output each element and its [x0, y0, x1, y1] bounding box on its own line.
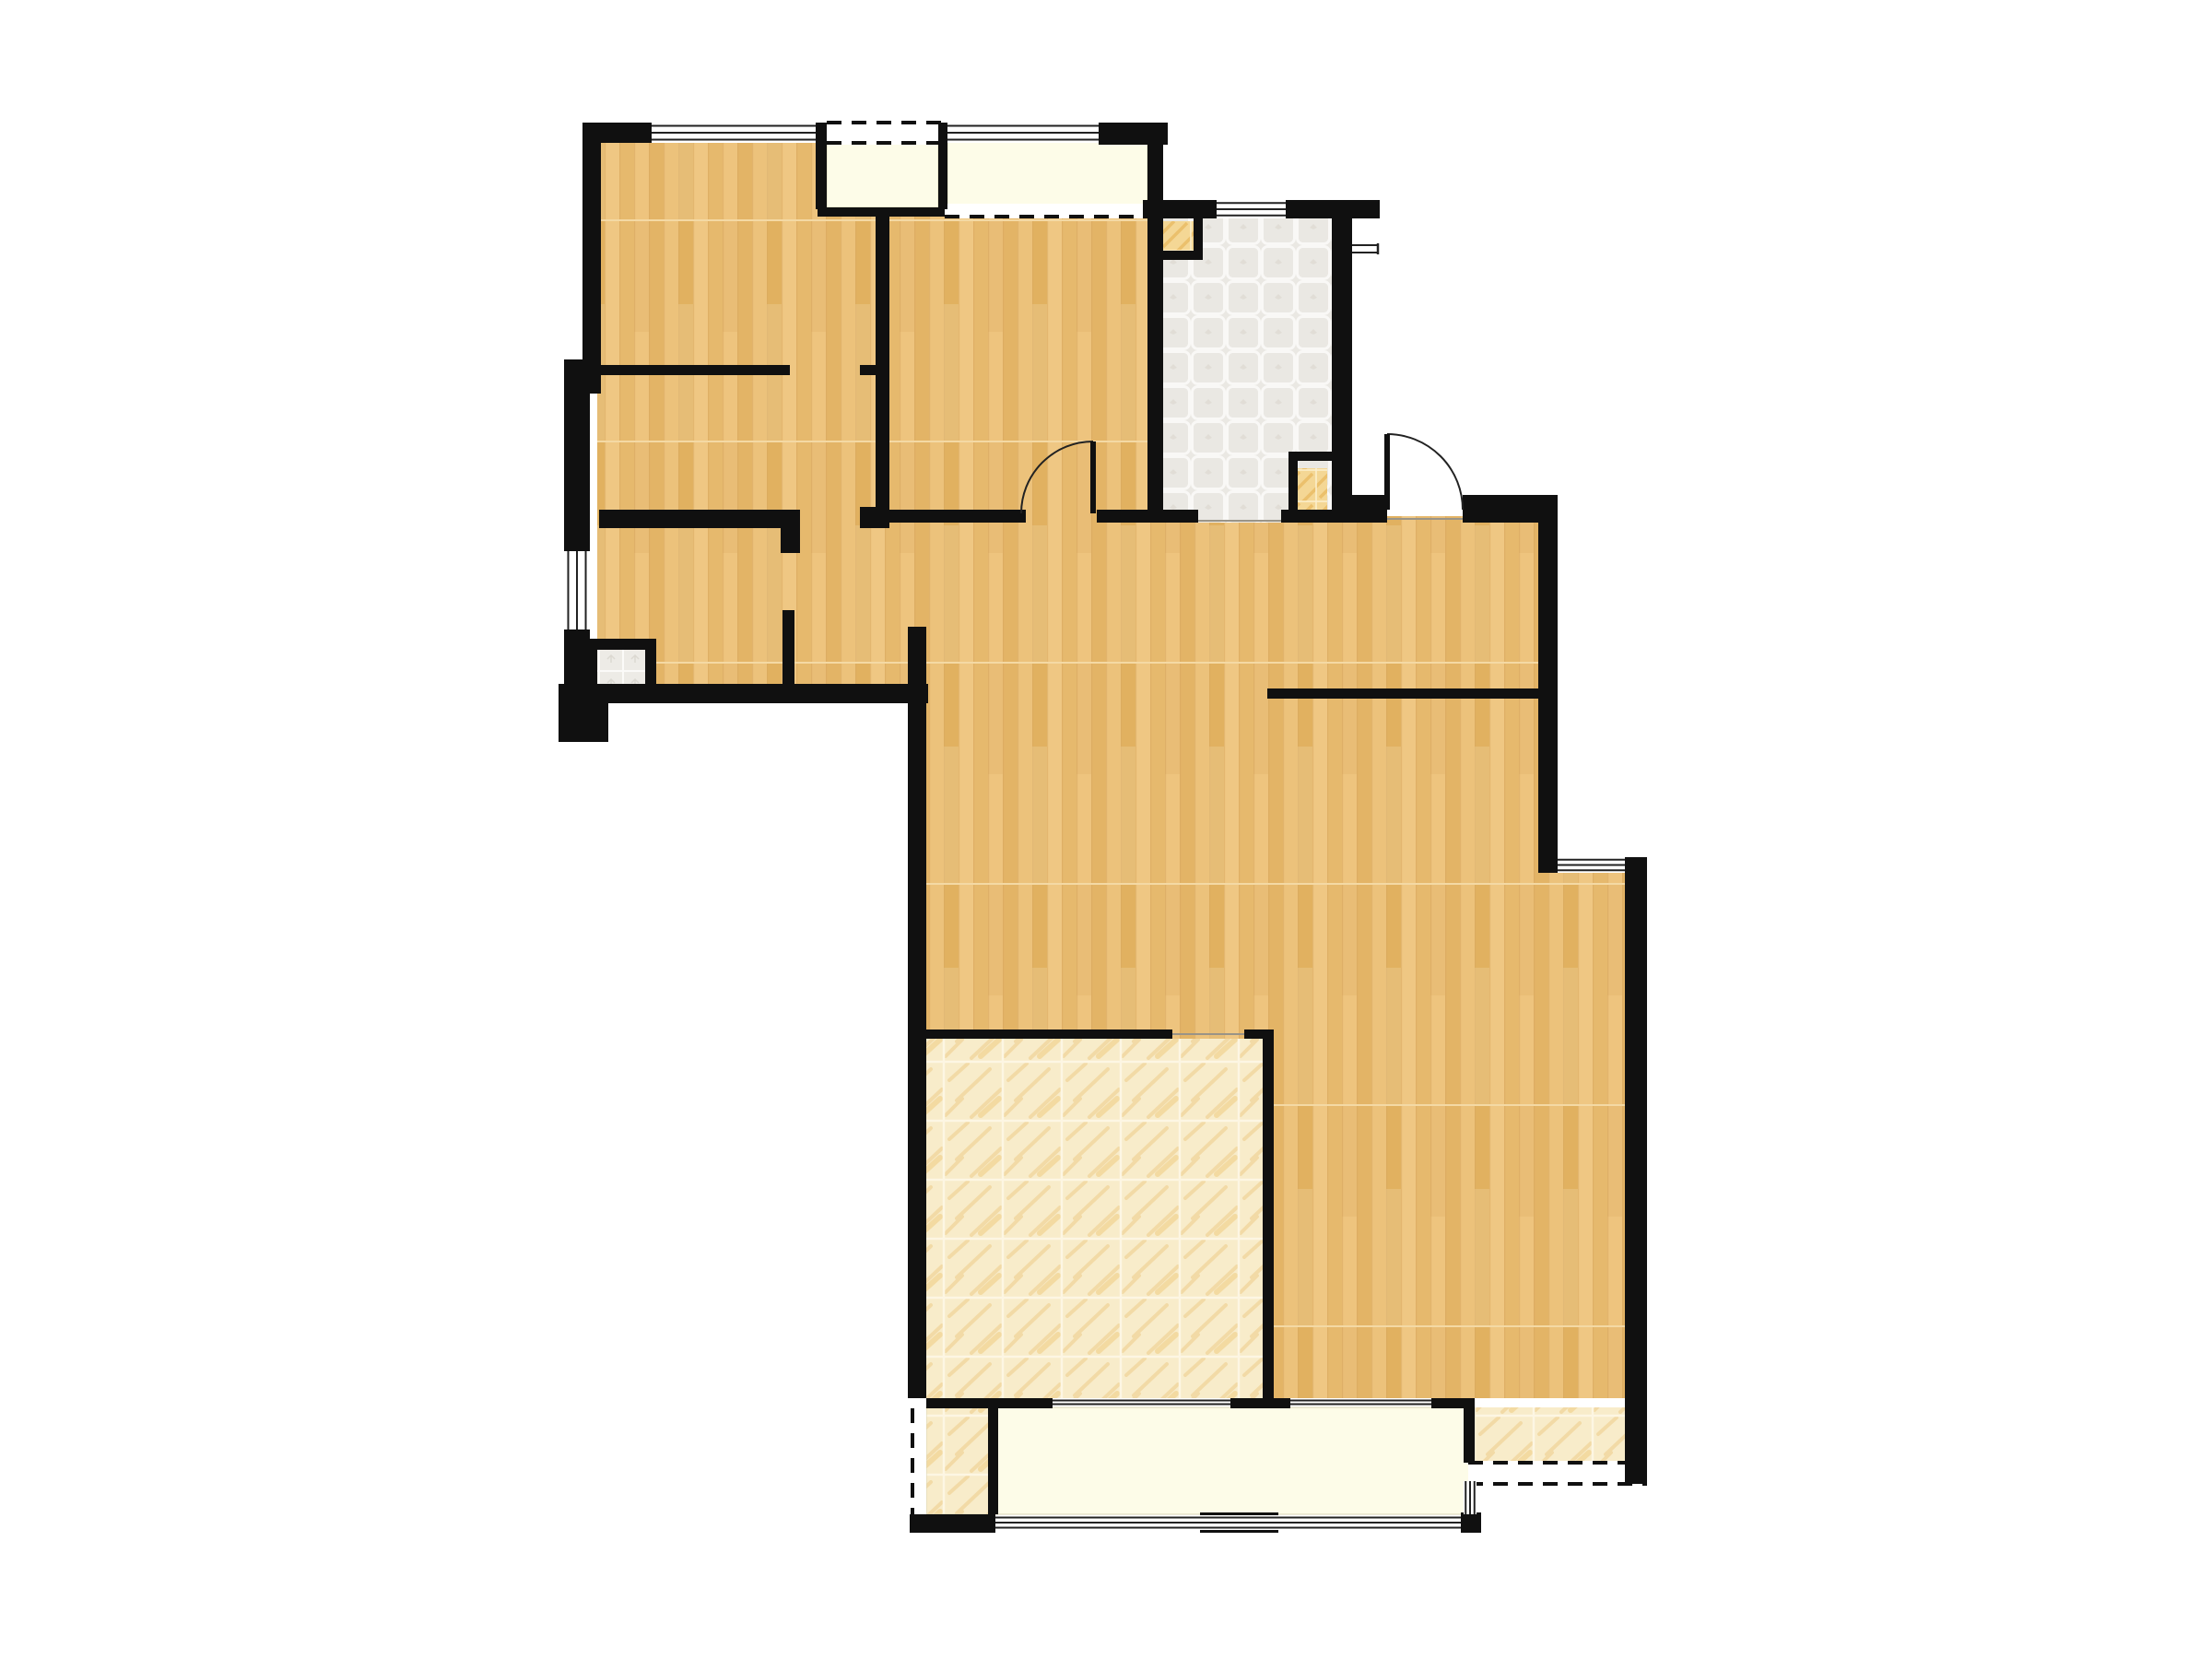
wall-master-north-stub	[1267, 688, 1538, 699]
wall-dining-west	[908, 627, 926, 1398]
wall-east-lower	[1625, 857, 1647, 1484]
shaft-entry-corner	[1298, 468, 1327, 510]
wall-shaft1-south	[1163, 251, 1203, 260]
wall-bay-divider	[938, 123, 947, 209]
shaft-hall-left	[597, 650, 645, 684]
wall-bathroom-east	[1332, 200, 1352, 523]
wall-dining-north-a	[926, 1030, 1172, 1039]
wall-room3-south-a	[889, 510, 1026, 523]
wall-balcony-north-b	[1230, 1398, 1290, 1408]
wall-bedroom-divider	[876, 217, 889, 528]
wall-east-upper	[1538, 495, 1558, 860]
room-middle-left-floor	[597, 369, 876, 528]
bedroom-top-center-floor	[889, 217, 1147, 516]
wall-tc-corner	[1099, 123, 1168, 145]
wall-balcony-east	[1464, 1407, 1475, 1463]
ac-platform-right	[1475, 1407, 1625, 1463]
wall-west-step	[564, 359, 601, 394]
window-balcony-in-a	[1053, 1398, 1230, 1406]
entry-door	[1387, 434, 1463, 510]
floor-plan	[0, 0, 2212, 1659]
wall-shaft2-west	[1288, 459, 1298, 510]
wall-balcony-north-c	[1431, 1398, 1475, 1408]
wall-tl-corner	[582, 123, 652, 143]
wall-divider-foot	[860, 507, 889, 528]
wall-hall-south	[597, 684, 928, 703]
wall-shaft-left-top	[564, 639, 656, 650]
wall-shaft-left-west	[564, 650, 597, 684]
wall-shaft-left-right	[645, 639, 656, 684]
wall-balcony-sw-post	[910, 1514, 995, 1533]
balcony-service-strip	[926, 1407, 988, 1514]
edge-ac-platform	[1468, 1461, 1647, 1486]
wall-bay-left-pier	[816, 123, 827, 209]
wall-hall-stub	[782, 610, 794, 687]
wall-bathroom-west	[1147, 143, 1163, 523]
wall-hall-north-end	[781, 510, 800, 553]
wall-shaft2-south	[1300, 510, 1352, 523]
wall-strip-east	[988, 1408, 998, 1514]
bay-window-left-floor	[827, 143, 938, 207]
balcony-floor	[926, 1407, 1475, 1514]
wall-bay-left-sill	[818, 207, 945, 217]
floors-layer	[597, 140, 1625, 1514]
wall-bathroom-south-a	[1147, 510, 1198, 523]
wall-bathroom-south-b	[1281, 510, 1300, 523]
dining-room-floor	[926, 1039, 1263, 1398]
bathroom-floor	[1147, 218, 1332, 510]
wall-bedroom1-south	[601, 365, 790, 375]
wall-bedroom1-south-stub	[860, 365, 876, 375]
wall-west-mid	[564, 394, 590, 551]
shaft-bathroom-corner	[1163, 221, 1194, 251]
window-balcony-in-b	[1290, 1398, 1431, 1406]
entry-door-arc	[1387, 434, 1463, 510]
wall-dining-east	[1263, 1030, 1274, 1398]
pipe-stub-bathroom	[1352, 243, 1378, 254]
wall-hall-north	[599, 510, 800, 528]
wall-balcony-se-post	[1461, 1512, 1481, 1533]
bay-window-center-floor	[947, 140, 1147, 206]
wall-west-upper	[582, 143, 601, 359]
floor-plan-svg	[0, 0, 2212, 1659]
wall-entry-west	[1352, 495, 1387, 523]
wall-balcony-north-a	[926, 1398, 1053, 1408]
